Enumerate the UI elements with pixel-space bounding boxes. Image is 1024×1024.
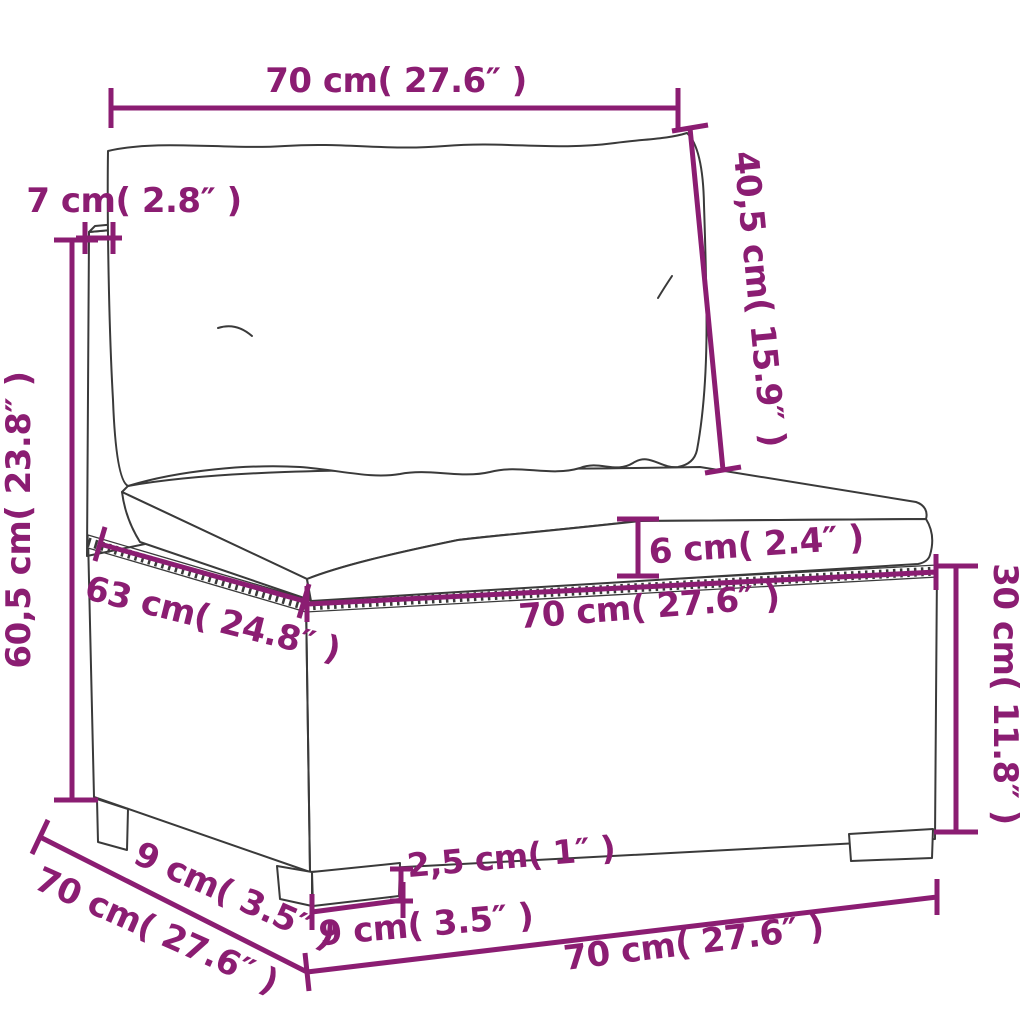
sofa-dimension-drawing: 70 cm( 27.6″ ) 40,5 cm( 15.9″ ) 7 cm( 2.… xyxy=(0,0,1024,1024)
dim-base-height-line xyxy=(934,566,978,832)
dim-cushion-width-top: 70 cm( 27.6″ ) xyxy=(111,61,678,128)
leg-front-right xyxy=(849,829,933,861)
dim-cushion-width-top-label: 70 cm( 27.6″ ) xyxy=(265,61,527,101)
dim-frame-thickness-label: 7 cm( 2.8″ ) xyxy=(26,181,241,221)
dim-total-width-bottom-label: 70 cm( 27.6″ ) xyxy=(561,907,826,979)
dim-total-height: 60,5 cm( 23.8″ ) xyxy=(0,240,98,800)
dimension-diagram: 70 cm( 27.6″ ) 40,5 cm( 15.9″ ) 7 cm( 2.… xyxy=(0,0,1024,1024)
dim-leg-height: 2,5 cm( 1″ ) xyxy=(390,828,617,901)
leg-back-left xyxy=(97,799,128,850)
dim-leg-height-label: 2,5 cm( 1″ ) xyxy=(405,828,616,885)
dim-base-height: 30 cm( 11.8″ ) xyxy=(934,563,1024,832)
dim-base-height-label: 30 cm( 11.8″ ) xyxy=(985,563,1024,825)
dim-total-height-label: 60,5 cm( 23.8″ ) xyxy=(0,371,39,668)
leg-front-left xyxy=(312,863,400,906)
sofa-drawing xyxy=(87,133,937,906)
dim-total-depth: 9 cm( 3.5″ ) 70 cm( 27.6″ ) xyxy=(29,820,341,1002)
dim-back-cushion-height-label: 40,5 cm( 15.9″ ) xyxy=(725,149,793,449)
